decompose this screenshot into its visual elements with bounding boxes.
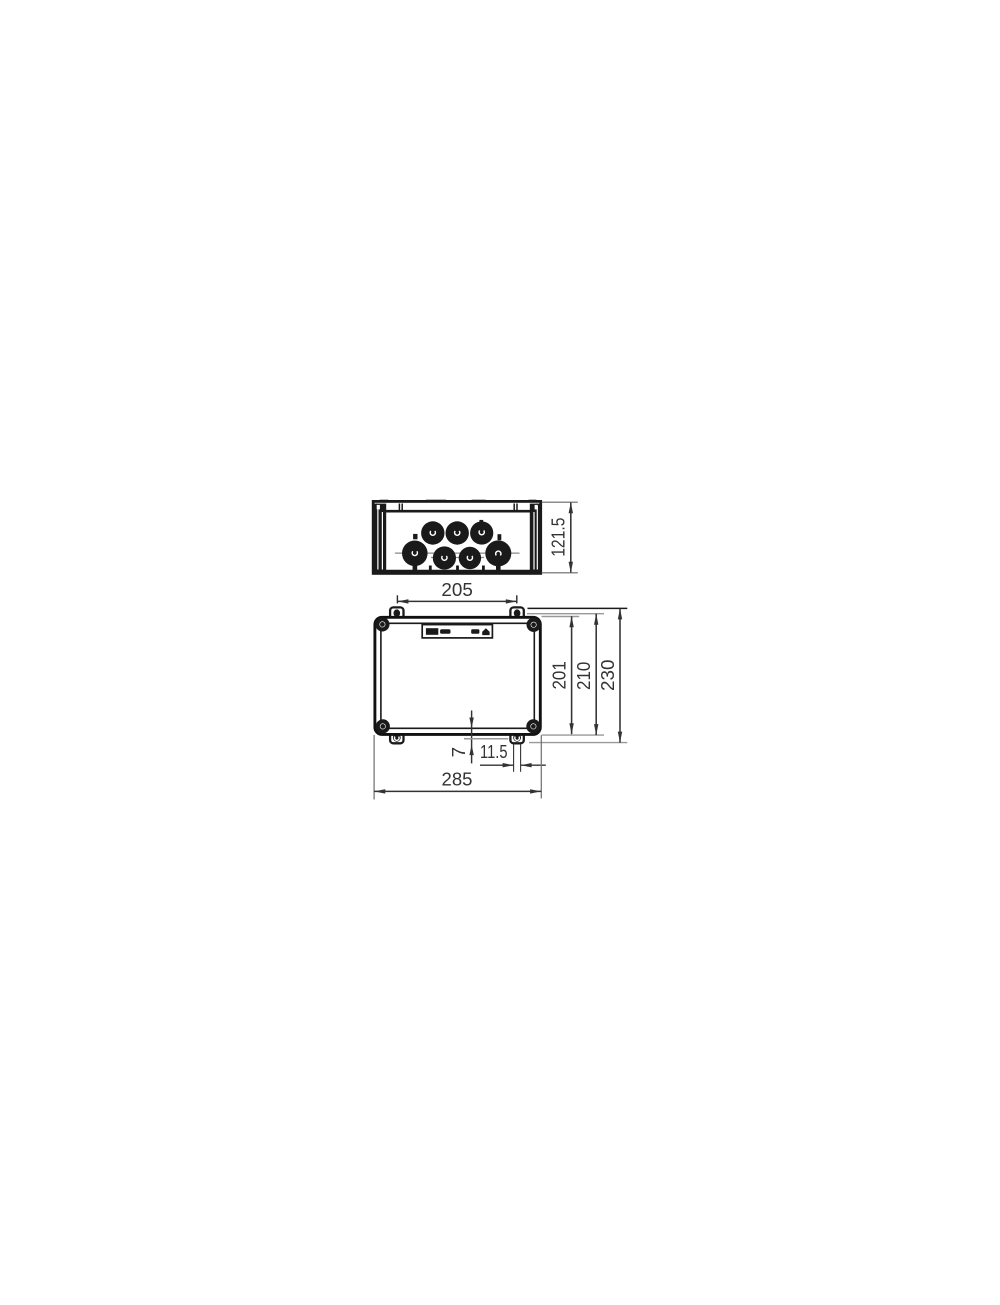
svg-text:230: 230: [597, 660, 618, 691]
svg-text:121.5: 121.5: [547, 518, 568, 557]
svg-text:7: 7: [448, 747, 469, 757]
svg-text:210: 210: [573, 662, 594, 690]
svg-text:205: 205: [441, 579, 472, 600]
svg-text:11.5: 11.5: [480, 741, 508, 762]
svg-text:285: 285: [442, 768, 473, 789]
svg-text:201: 201: [549, 661, 570, 689]
